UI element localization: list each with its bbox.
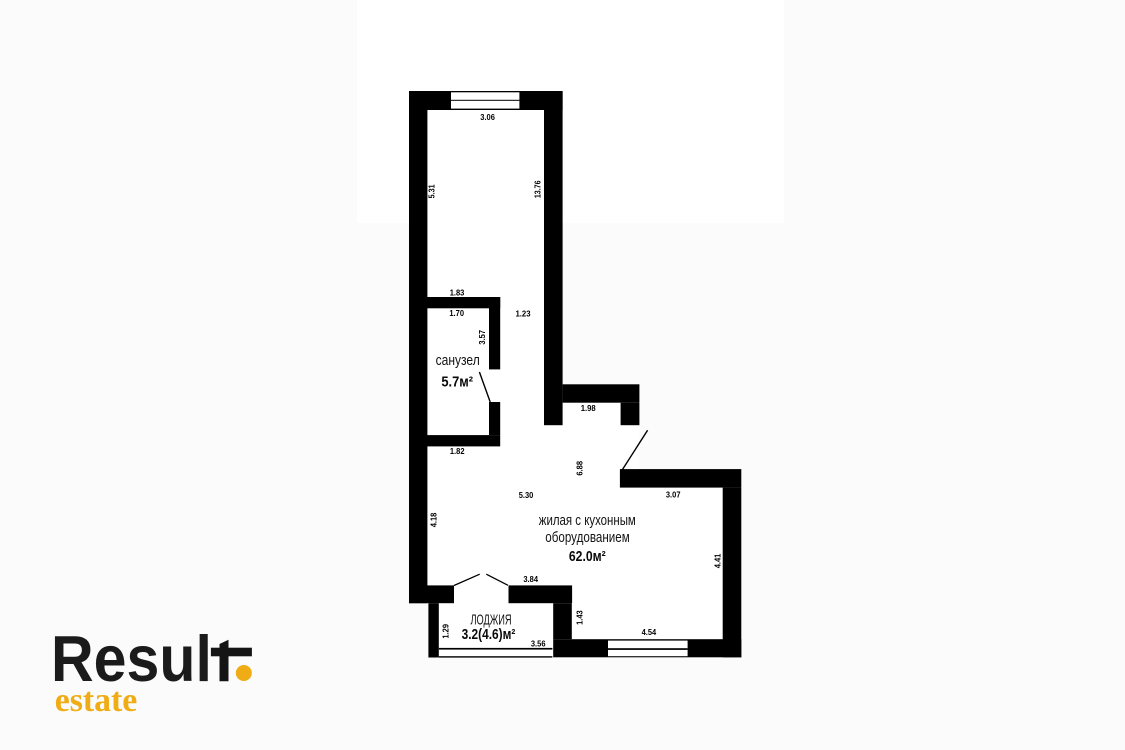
svg-text:3.06: 3.06 xyxy=(480,112,495,122)
svg-text:13.76: 13.76 xyxy=(533,180,543,198)
svg-text:estate: estate xyxy=(55,682,138,719)
svg-text:1.29: 1.29 xyxy=(441,624,451,639)
svg-text:1.83: 1.83 xyxy=(450,287,465,297)
svg-text:4.41: 4.41 xyxy=(712,554,722,569)
svg-text:62.0м²: 62.0м² xyxy=(569,549,606,565)
svg-text:3.84: 3.84 xyxy=(523,574,538,584)
svg-text:4.54: 4.54 xyxy=(642,627,657,637)
svg-text:ЛОДЖИЯ: ЛОДЖИЯ xyxy=(470,612,511,629)
svg-text:5.31: 5.31 xyxy=(427,184,437,198)
svg-text:6.88: 6.88 xyxy=(574,461,584,476)
svg-text:1.82: 1.82 xyxy=(450,446,465,456)
svg-text:5.30: 5.30 xyxy=(519,490,534,500)
svg-text:1.98: 1.98 xyxy=(581,403,596,413)
svg-text:3.56: 3.56 xyxy=(531,638,546,648)
svg-text:1.23: 1.23 xyxy=(515,309,530,319)
svg-text:оборудованием: оборудованием xyxy=(545,529,630,546)
svg-text:3.2(4.6)м²: 3.2(4.6)м² xyxy=(462,627,516,643)
svg-text:1.43: 1.43 xyxy=(574,610,584,625)
svg-text:санузел: санузел xyxy=(436,352,480,369)
svg-text:5.7м²: 5.7м² xyxy=(441,374,473,390)
svg-text:жилая с кухонным: жилая с кухонным xyxy=(539,512,636,529)
svg-text:1.70: 1.70 xyxy=(449,308,464,318)
svg-text:4.18: 4.18 xyxy=(428,513,438,528)
svg-text:3.07: 3.07 xyxy=(666,490,681,500)
svg-text:3.57: 3.57 xyxy=(477,330,487,345)
